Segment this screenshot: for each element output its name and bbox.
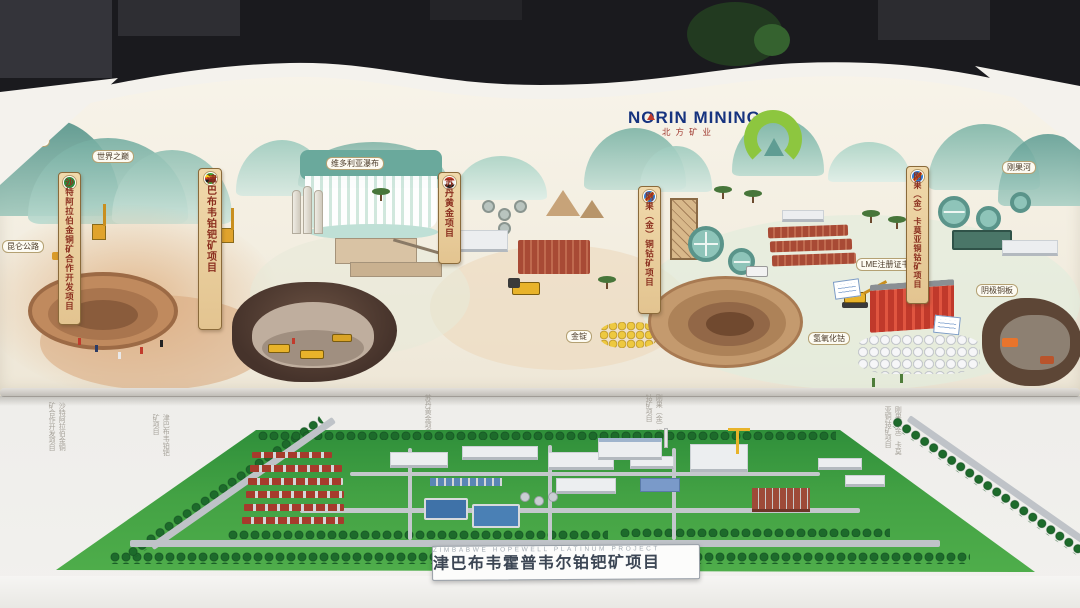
worker-figure xyxy=(292,338,295,344)
orange-truck xyxy=(1002,338,1018,347)
blue-roof-building xyxy=(640,478,680,492)
storage-tank xyxy=(520,492,530,502)
pyramid xyxy=(580,200,604,218)
brick-building xyxy=(752,488,810,512)
orange-truck xyxy=(1040,356,1054,364)
drill-rig xyxy=(220,228,234,243)
certificate-lines xyxy=(837,283,856,295)
model-nameplate: 津巴布韦霍普韦尔铂钯矿项目 ZIMBABWE HOPEWELL PLATINUM… xyxy=(432,544,700,581)
plant-office xyxy=(782,210,824,222)
cil-tank xyxy=(482,200,495,213)
storage-tank xyxy=(548,492,558,502)
crane-jib xyxy=(728,428,750,431)
drill-rig-mast xyxy=(231,208,234,230)
plant-building xyxy=(1002,240,1058,256)
model-pond xyxy=(424,498,468,520)
residential-row xyxy=(246,491,344,498)
residential-row xyxy=(244,504,344,511)
spiral-pit-floor xyxy=(706,312,754,336)
project-banner-drc-mine: 刚果（金）铜钴矿项目 xyxy=(638,186,661,314)
thickener-pond xyxy=(938,196,970,228)
residential-row xyxy=(242,517,344,524)
cil-tank xyxy=(498,208,511,221)
worker-figure xyxy=(140,347,143,354)
residential-row xyxy=(250,465,342,472)
ceiling-structure xyxy=(0,0,1080,200)
lhd-loader xyxy=(332,334,352,342)
worker-figure xyxy=(95,345,98,352)
model-building xyxy=(462,446,538,460)
cobalt-hydroxide-barrels xyxy=(858,334,980,374)
container-stack xyxy=(518,240,590,274)
lhd-loader xyxy=(300,350,324,359)
drill-rig-mast xyxy=(103,204,106,226)
wall-caption: 沙特阿拉伯金铜矿合作开发项目 xyxy=(46,402,66,454)
model-building xyxy=(818,458,862,470)
landmark-label: 昆仑公路 xyxy=(2,240,44,253)
model-building xyxy=(598,438,662,460)
thickener-pond xyxy=(688,226,724,262)
model-building xyxy=(845,475,885,487)
worker-figure xyxy=(160,340,163,347)
banner-text: 刚果（金）铜钴矿项目 xyxy=(644,192,656,287)
certificate-board xyxy=(833,278,861,299)
model-building xyxy=(556,478,616,494)
model-pond xyxy=(472,504,520,528)
tree-row xyxy=(620,528,890,537)
product-label: 金锭 xyxy=(566,330,592,343)
worker-figure xyxy=(118,352,121,359)
worker-figure xyxy=(78,338,81,345)
certificate-lines xyxy=(938,319,957,331)
cactus xyxy=(900,374,903,383)
acacia-canopy xyxy=(888,216,906,223)
tank-row xyxy=(430,478,502,486)
thickener-arm xyxy=(733,261,749,263)
cactus xyxy=(872,378,875,387)
thickener-arm xyxy=(705,232,707,256)
certificate-board xyxy=(933,315,961,336)
mining-truck-bed xyxy=(508,278,520,288)
model-building xyxy=(690,444,748,472)
plant-building xyxy=(350,262,442,277)
exhibition-photo: 乔戈里峰 世界之巅 昆仑公路 维多利亚瀑布 刚果河 金锭 LME注册证书 阴极铜… xyxy=(0,0,1080,608)
acacia-canopy xyxy=(598,276,616,283)
thickener-arm xyxy=(944,211,965,213)
residential-row xyxy=(252,452,332,458)
screen-drop-shadow xyxy=(0,396,1080,406)
product-label: 阴极铜板 xyxy=(976,284,1018,297)
residential-row xyxy=(248,478,343,485)
haul-truck xyxy=(746,266,768,277)
drill-rig xyxy=(92,224,106,240)
cil-tank xyxy=(514,200,527,213)
crane-mast xyxy=(736,428,739,454)
acacia-canopy xyxy=(862,210,880,217)
smokestack xyxy=(664,428,668,448)
model-building xyxy=(390,452,448,468)
product-label: 氢氧化钴 xyxy=(808,332,850,345)
lhd-loader xyxy=(268,344,290,353)
model-road xyxy=(350,472,820,476)
storage-tank xyxy=(534,496,544,506)
tree-row xyxy=(258,431,836,440)
thickener-pond xyxy=(976,206,1001,231)
wall-caption: 津巴布韦铂钯矿项目 xyxy=(150,414,170,458)
exhibit-floor xyxy=(0,576,1080,608)
